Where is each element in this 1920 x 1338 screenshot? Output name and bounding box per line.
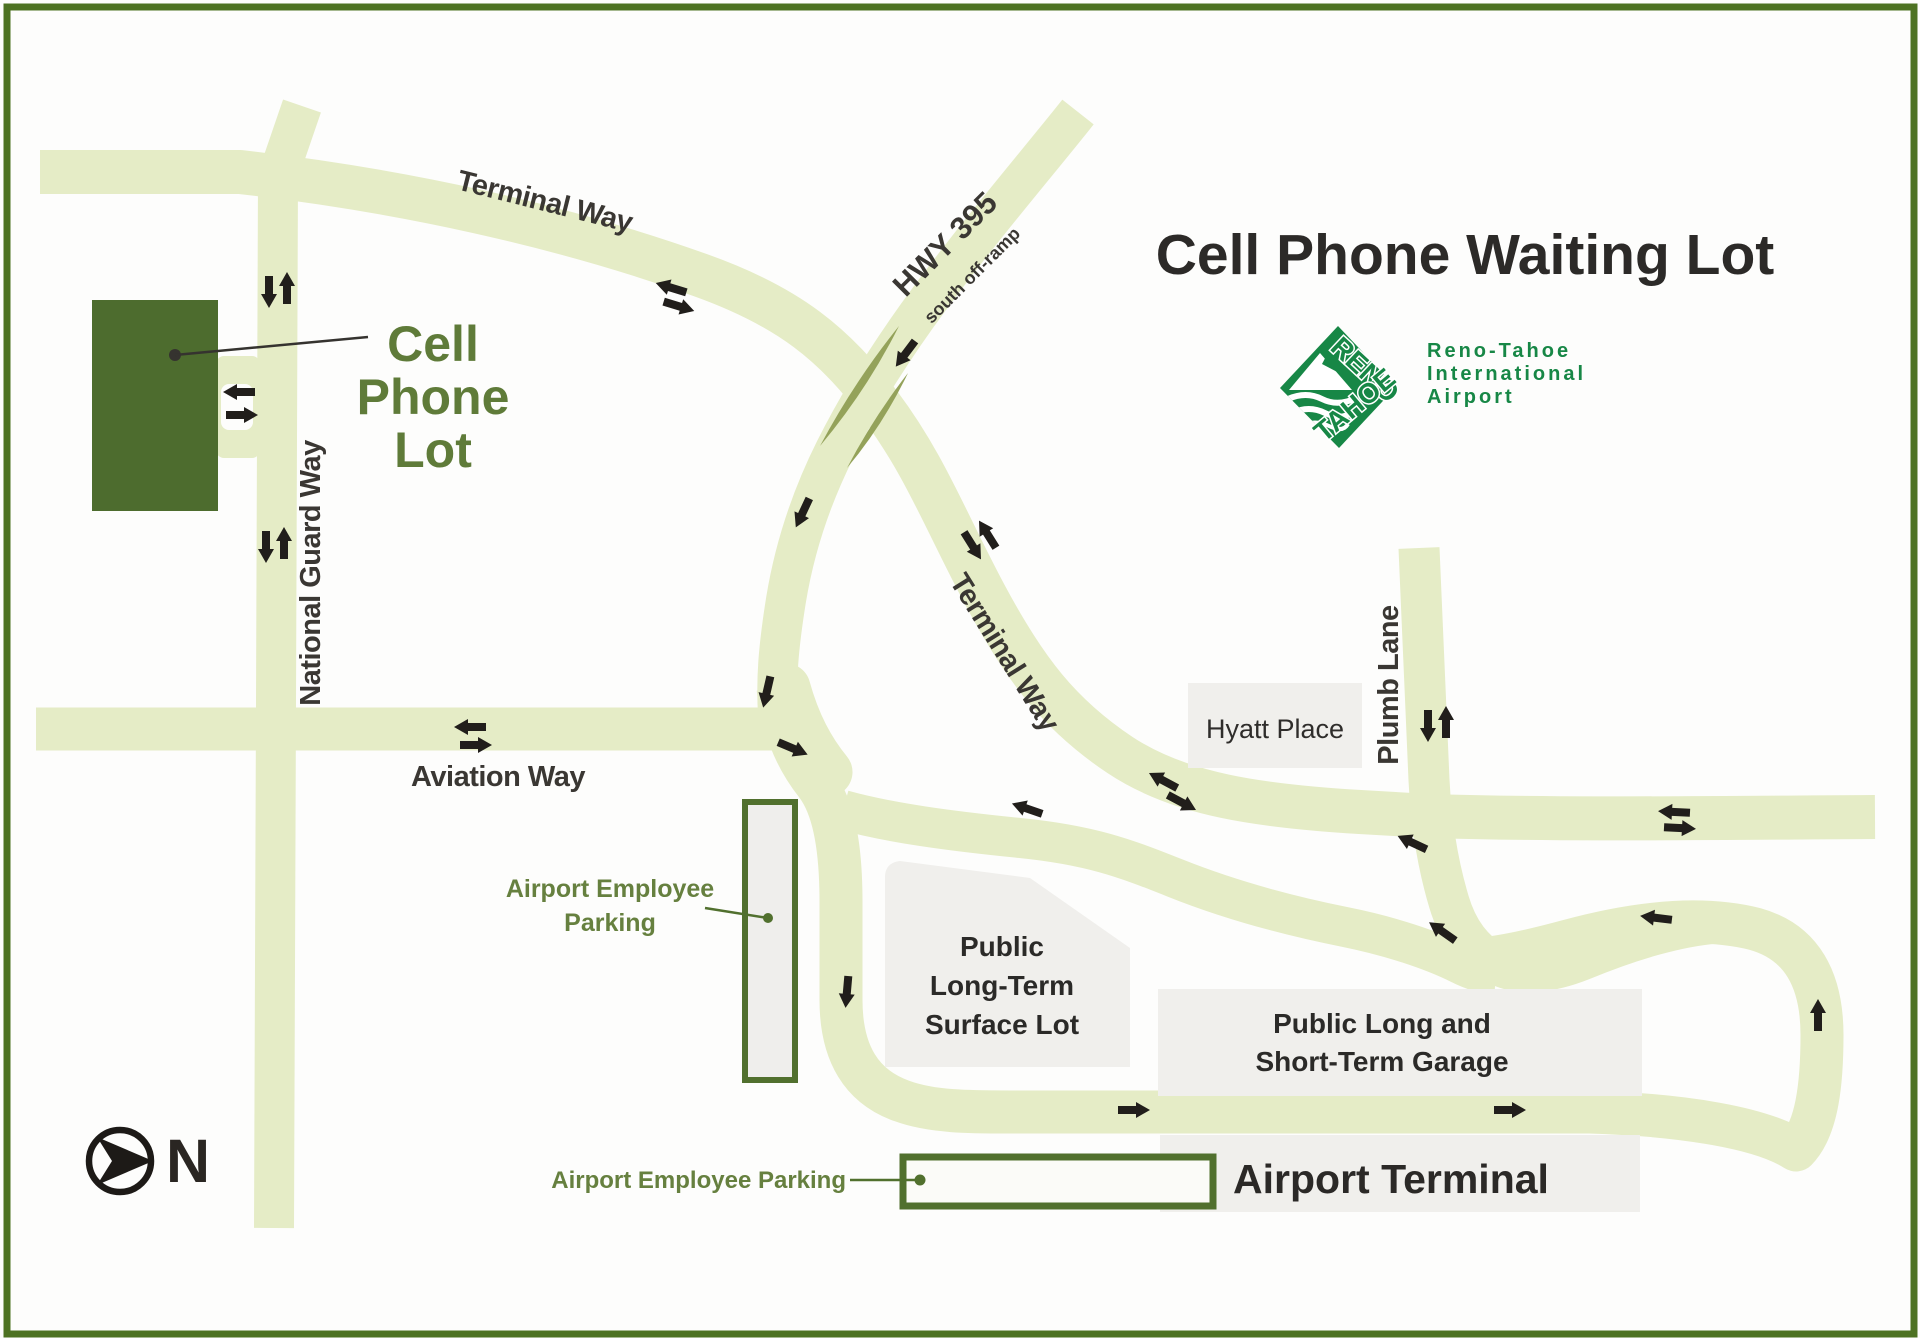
svg-text:Airport Employee Parking: Airport Employee Parking	[551, 1167, 846, 1194]
svg-text:Airport: Airport	[1427, 386, 1515, 408]
svg-text:Phone: Phone	[357, 369, 510, 425]
svg-text:Parking: Parking	[564, 909, 656, 937]
svg-text:National Guard Way: National Guard Way	[295, 440, 327, 706]
svg-text:N: N	[166, 1127, 210, 1195]
svg-text:Short-Term Garage: Short-Term Garage	[1255, 1046, 1508, 1077]
svg-text:Airport Employee: Airport Employee	[506, 875, 714, 903]
svg-text:Public: Public	[960, 931, 1044, 962]
svg-text:Public Long and: Public Long and	[1273, 1008, 1491, 1039]
svg-text:Cell: Cell	[387, 316, 479, 372]
svg-text:Hyatt Place: Hyatt Place	[1206, 714, 1344, 744]
svg-text:Plumb Lane: Plumb Lane	[1373, 605, 1405, 765]
svg-text:Long-Term: Long-Term	[930, 970, 1074, 1001]
svg-text:Reno-Tahoe: Reno-Tahoe	[1427, 340, 1571, 362]
svg-text:Aviation Way: Aviation Way	[411, 761, 585, 793]
svg-text:Airport Terminal: Airport Terminal	[1233, 1156, 1549, 1202]
svg-text:Cell Phone Waiting Lot: Cell Phone Waiting Lot	[1156, 223, 1775, 287]
svg-text:International: International	[1427, 363, 1586, 385]
svg-text:Surface Lot: Surface Lot	[925, 1009, 1079, 1040]
svg-text:Lot: Lot	[394, 422, 472, 478]
